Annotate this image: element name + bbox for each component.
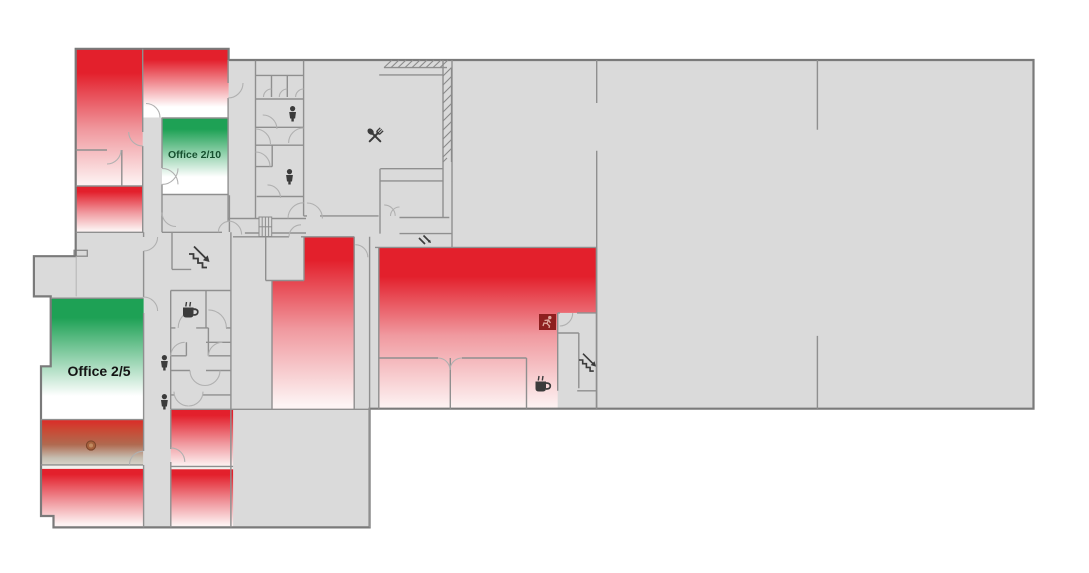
svg-text:Office 2/10: Office 2/10 — [168, 149, 221, 161]
svg-text:Office 2/5: Office 2/5 — [67, 363, 130, 379]
